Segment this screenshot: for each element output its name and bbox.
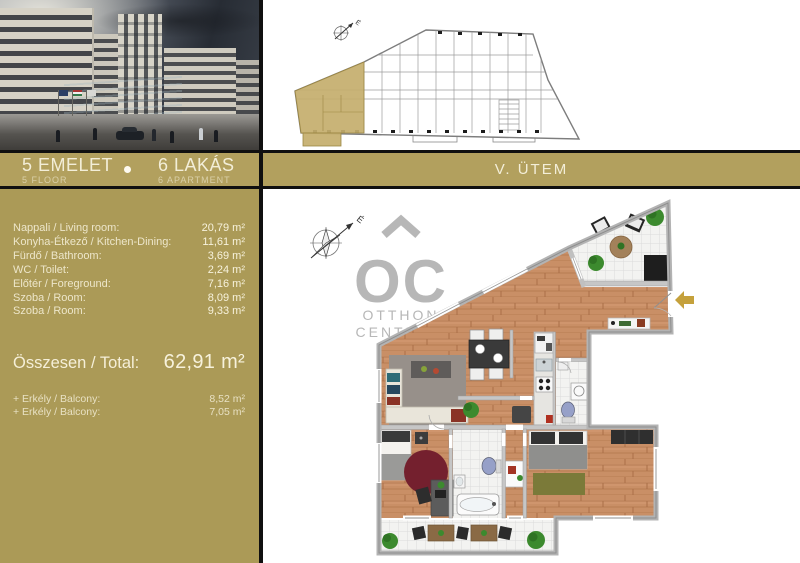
stove <box>536 377 553 392</box>
entrance-arrow-icon <box>675 291 694 309</box>
room-area: 3,69 m² <box>208 250 245 264</box>
highlighted-unit <box>295 62 364 146</box>
balcony-row: + Erkély / Balcony: 7,05 m² <box>13 406 245 419</box>
room-area: 11,61 m² <box>202 236 245 250</box>
divider-line <box>259 0 263 563</box>
north-label: É <box>355 214 366 226</box>
balcony-row: + Erkély / Balcony: 8,52 m² <box>13 393 245 406</box>
olive-rug <box>533 473 585 495</box>
listing-sheet: É OC OTTHON <box>0 0 800 563</box>
room-label: Konyha-Étkező / Kitchen-Dining: <box>13 236 171 250</box>
room-row: Fürdő / Bathroom: 3,69 m² <box>13 250 245 264</box>
room-row: Szoba / Room: 8,09 m² <box>13 292 245 306</box>
room-label: Szoba / Room: <box>13 292 86 306</box>
flagpole <box>58 90 59 116</box>
toilet <box>562 402 575 418</box>
privacy-screen <box>644 255 670 284</box>
balcony-label: + Erkély / Balcony: <box>13 406 100 419</box>
pedestrian <box>170 131 174 143</box>
logo-mark: OC <box>354 248 448 315</box>
room-row: Előtér / Foreground: 7,16 m² <box>13 278 245 292</box>
site-north-label: É <box>354 17 363 27</box>
flagpole <box>86 90 87 116</box>
floor-plan-drawing: OC OTTHON CENTRUM É <box>263 189 800 563</box>
pedestrian <box>93 128 97 140</box>
building-photo <box>0 0 259 150</box>
kitchen-appliances <box>535 333 553 392</box>
balcony-label: + Erkély / Balcony: <box>13 393 100 406</box>
room-row: Nappali / Living room: 20,79 m² <box>13 222 245 236</box>
floor-subtitle: 5 FLOOR <box>22 176 113 185</box>
balcony-area: 8,52 m² <box>209 393 245 406</box>
logo-roof-icon <box>384 220 418 235</box>
apartments-title: 6 LAKÁS <box>158 156 235 174</box>
phase-title: V. ÜTEM <box>495 161 568 178</box>
room-label: Szoba / Room: <box>13 305 86 319</box>
site-plan: É <box>263 0 800 150</box>
room-label: Nappali / Living room: <box>13 222 119 236</box>
apartments-group: 6 LAKÁS 6 APARTMENT <box>158 156 235 185</box>
car <box>116 131 144 140</box>
total-label: Összesen / Total: <box>13 354 139 373</box>
total-row: Összesen / Total: 62,91 m² <box>13 351 245 374</box>
room-area: 7,16 m² <box>208 278 245 292</box>
flag-white <box>87 90 96 96</box>
room-label: Előtér / Foreground: <box>13 278 111 292</box>
total-area: 62,91 m² <box>164 351 245 374</box>
area-summary-panel: Nappali / Living room: 20,79 m² Konyha-É… <box>0 189 259 563</box>
mat <box>512 406 531 423</box>
site-compass-icon: É <box>333 17 363 41</box>
dining-set <box>469 329 509 380</box>
floor-plan: OC OTTHON CENTRUM É <box>263 189 800 563</box>
flagpole <box>72 90 73 116</box>
pedestrian <box>199 128 203 140</box>
room-area: 8,09 m² <box>208 292 245 306</box>
room-area: 2,24 m² <box>208 264 245 278</box>
room-label: Fürdő / Bathroom: <box>13 250 102 264</box>
apartments-subtitle: 6 APARTMENT <box>158 176 235 185</box>
room-area: 9,33 m² <box>208 305 245 319</box>
room-row: WC / Toilet: 2,24 m² <box>13 264 245 278</box>
toilet <box>482 458 496 475</box>
room-list: Nappali / Living room: 20,79 m² Konyha-É… <box>13 222 245 319</box>
wardrobe <box>611 430 653 444</box>
balcony-area: 7,05 m² <box>209 406 245 419</box>
room-area: 20,79 m² <box>202 222 245 236</box>
separator-dot <box>124 166 131 173</box>
balcony-list: + Erkély / Balcony: 8,52 m² + Erkély / B… <box>13 393 245 419</box>
pedestrian <box>56 130 60 142</box>
pedestrian <box>214 130 218 142</box>
flag-hu <box>73 90 82 96</box>
building-block-far <box>236 60 259 116</box>
room-row: Konyha-Étkező / Kitchen-Dining: 11,61 m² <box>13 236 245 250</box>
floor-group: 5 EMELET 5 FLOOR <box>22 156 113 185</box>
tv-panel <box>411 361 451 378</box>
red-stool <box>546 415 553 423</box>
floor-apartment-band: 5 EMELET 5 FLOOR 6 LAKÁS 6 APARTMENT <box>0 153 259 186</box>
flag-eu <box>59 90 68 96</box>
room-row: Szoba / Room: 9,33 m² <box>13 305 245 319</box>
washing-machine <box>571 383 587 400</box>
phase-band: V. ÜTEM <box>263 153 800 186</box>
site-plan-drawing: É <box>263 0 800 150</box>
pedestrian <box>152 129 156 141</box>
room-label: WC / Toilet: <box>13 264 69 278</box>
entry-hall-furniture <box>608 318 650 329</box>
floor-title: 5 EMELET <box>22 156 113 174</box>
